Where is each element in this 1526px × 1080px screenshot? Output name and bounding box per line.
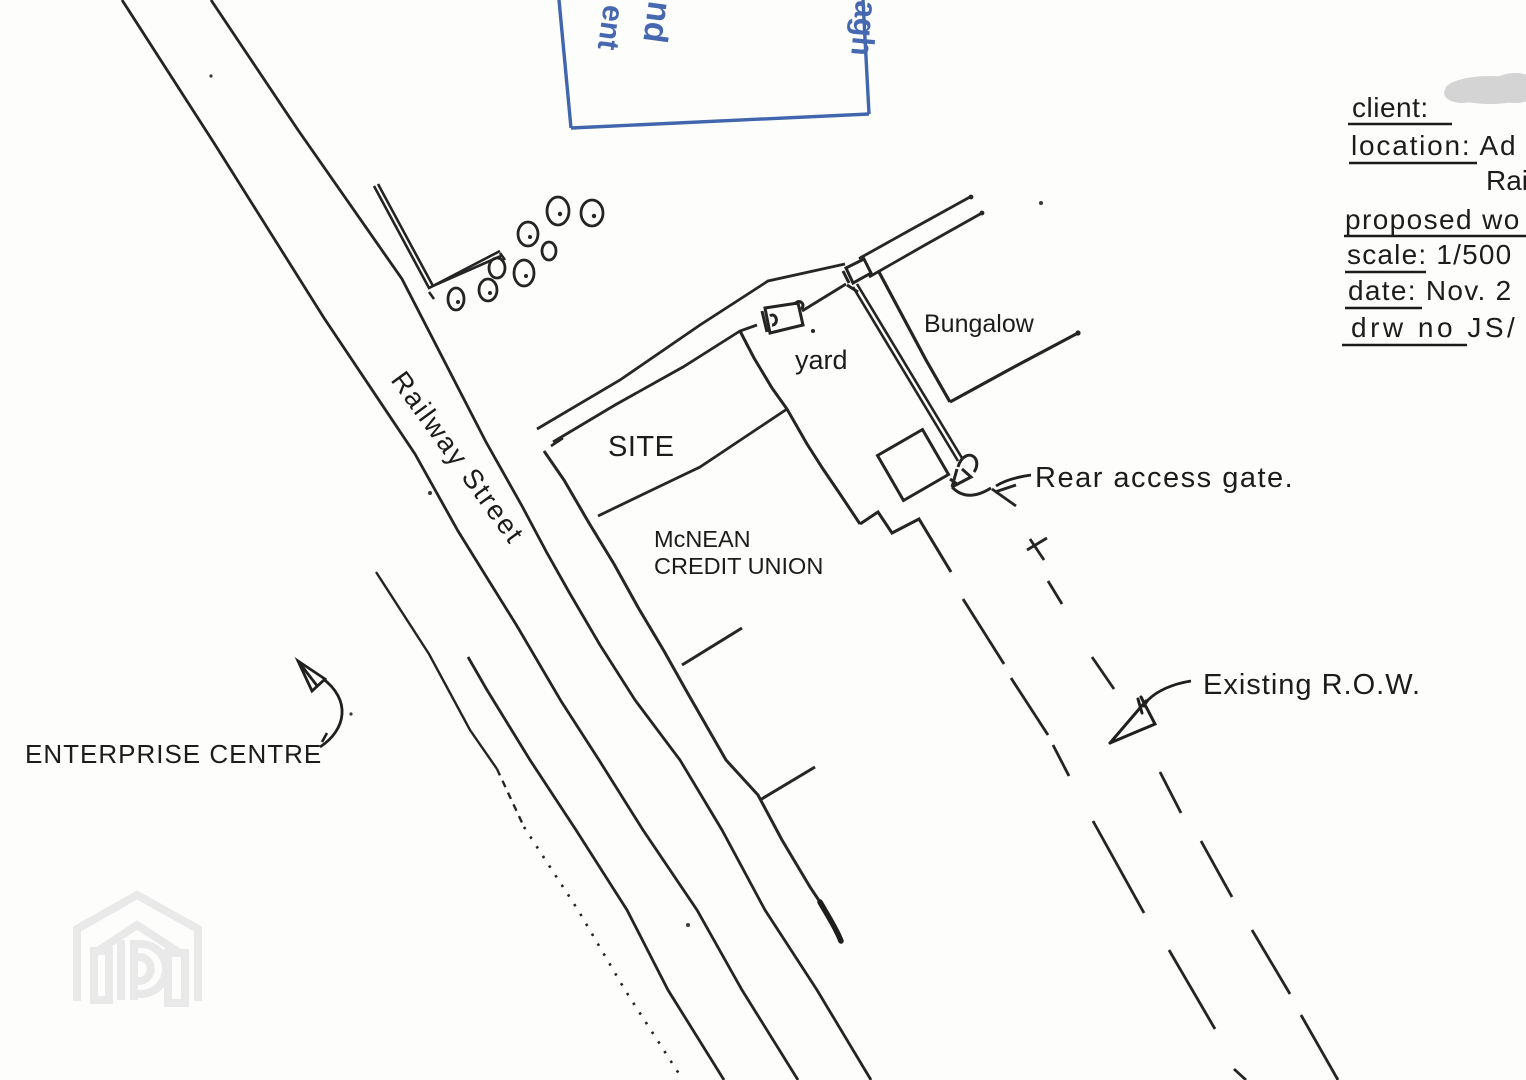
svg-text:yard: yard (795, 345, 848, 375)
svg-text:Rai: Rai (1486, 165, 1526, 196)
svg-text:Bungalow: Bungalow (924, 310, 1035, 338)
svg-text:scale: 1/500: scale: 1/500 (1347, 239, 1512, 270)
svg-text:SITE: SITE (608, 431, 674, 463)
svg-text:McNEAN: McNEAN (654, 526, 751, 552)
svg-text:drw no JS/: drw no JS/ (1351, 312, 1518, 343)
svg-text:Railway Street: Railway Street (385, 365, 531, 549)
svg-text:date: Nov. 2: date: Nov. 2 (1348, 275, 1513, 306)
svg-text:ENTERPRISE CENTRE: ENTERPRISE CENTRE (25, 739, 322, 769)
svg-text:Existing R.O.W.: Existing R.O.W. (1203, 669, 1421, 701)
svg-text:nd: nd (635, 0, 678, 45)
svg-text:agh: agh (844, 0, 884, 57)
svg-text:proposed wo: proposed wo (1345, 204, 1521, 235)
svg-text:Rear access gate.: Rear access gate. (1035, 462, 1294, 494)
svg-text:ent: ent (591, 3, 630, 52)
svg-text:CREDIT UNION: CREDIT UNION (654, 553, 823, 579)
svg-text:client:: client: (1352, 92, 1429, 123)
svg-text:location: Ad: location: Ad (1351, 130, 1517, 161)
